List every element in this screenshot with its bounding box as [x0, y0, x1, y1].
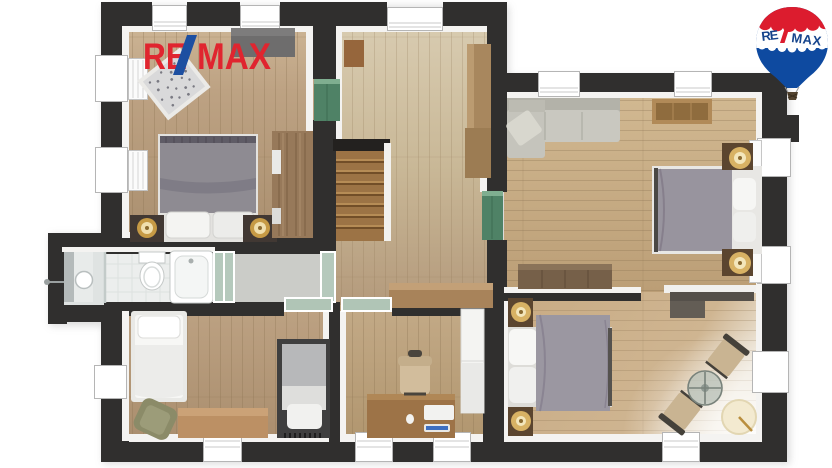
svg-text:RE: RE	[761, 27, 780, 44]
svg-text:MAX: MAX	[197, 36, 271, 77]
